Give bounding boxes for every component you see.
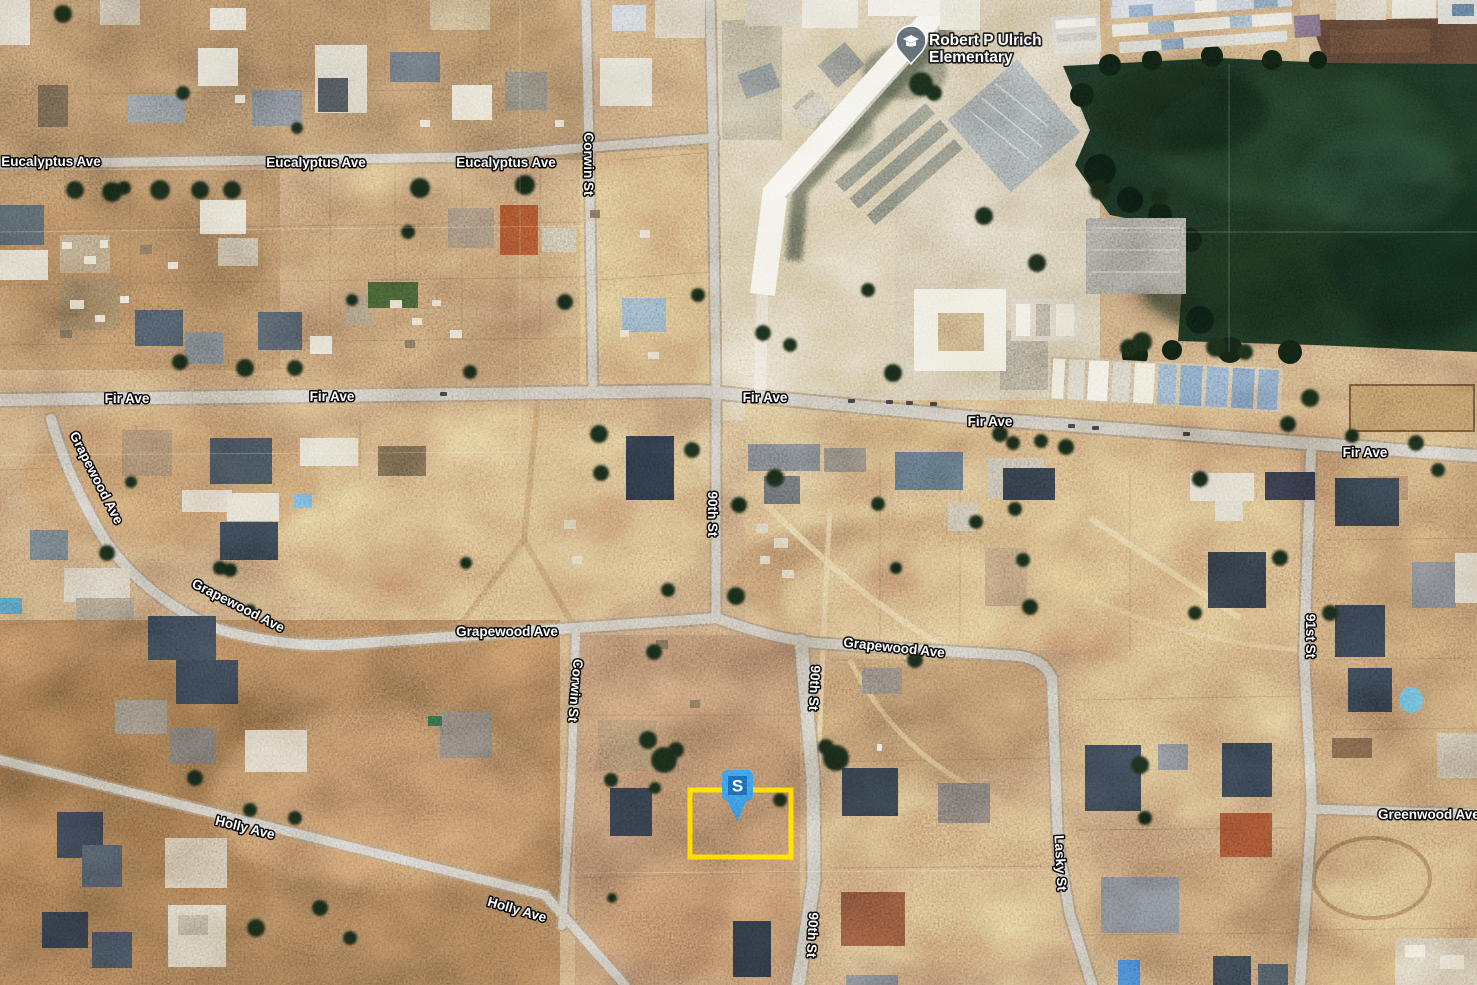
svg-text:S: S (732, 777, 743, 796)
svg-text:Fir Ave: Fir Ave (968, 414, 1013, 429)
svg-text:Eucalyptus Ave: Eucalyptus Ave (456, 155, 556, 170)
svg-text:90th St: 90th St (806, 665, 823, 711)
svg-text:Corwin St: Corwin St (581, 133, 596, 197)
svg-text:91st St: 91st St (1303, 614, 1318, 659)
svg-text:Fir Ave: Fir Ave (310, 389, 355, 404)
svg-text:Eucalyptus Ave: Eucalyptus Ave (266, 155, 366, 170)
svg-text:Eucalyptus Ave: Eucalyptus Ave (1, 154, 101, 169)
svg-text:Fir Ave: Fir Ave (1343, 445, 1388, 460)
svg-text:Elementary: Elementary (929, 49, 1013, 66)
svg-text:Grapewood Ave: Grapewood Ave (456, 624, 558, 639)
svg-text:90th St: 90th St (705, 491, 720, 537)
svg-text:Lasky St: Lasky St (1052, 835, 1070, 892)
svg-text:Robert P Ulrich: Robert P Ulrich (929, 32, 1042, 49)
svg-text:Fir Ave: Fir Ave (743, 390, 788, 405)
svg-text:Fir Ave: Fir Ave (105, 391, 150, 406)
svg-text:Greenwood Ave: Greenwood Ave (1378, 807, 1477, 822)
svg-text:90th St: 90th St (804, 912, 821, 958)
